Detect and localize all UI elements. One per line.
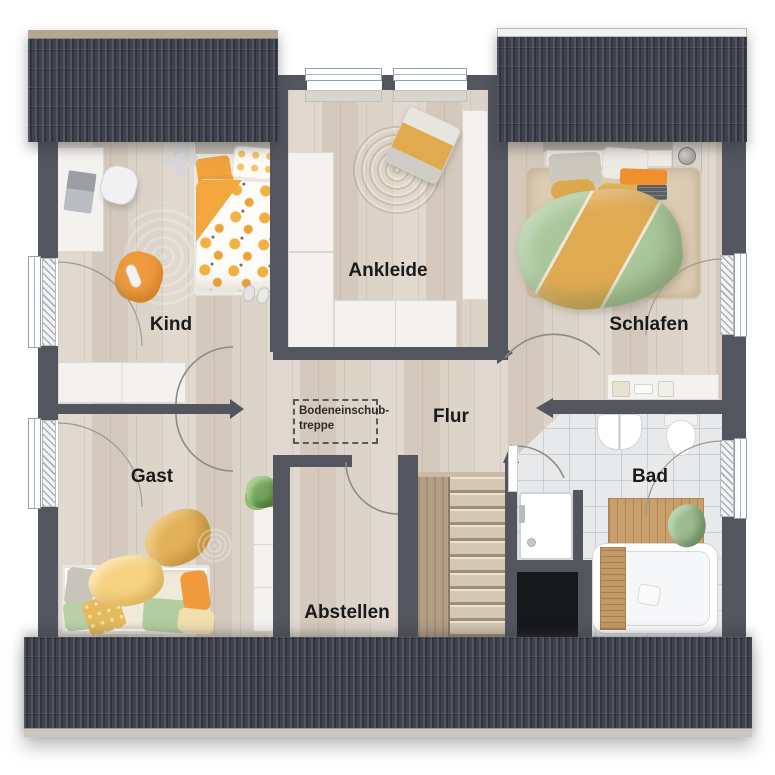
roof-top-right-ridge: [497, 28, 747, 37]
room-label-flur: Flur: [411, 406, 491, 428]
door-arc-schlafen: [505, 334, 600, 358]
annotation-line2: treppe: [299, 419, 376, 434]
roof-bottom: [24, 637, 752, 737]
door-arc-bad: [518, 446, 564, 478]
window-arc-gast: [58, 423, 142, 507]
door-arc-kind: [176, 347, 233, 404]
room-label-ankleide: Ankleide: [328, 260, 448, 282]
door-arc-gast: [176, 414, 233, 471]
room-label-kind: Kind: [131, 314, 211, 336]
roof-bottom-gutter: [24, 728, 752, 737]
annotation-line1: Bodeneinschub-: [299, 404, 376, 419]
roof-top-left-ridge: [28, 30, 278, 39]
room-label-abstellen: Abstellen: [277, 602, 417, 624]
window-arc-kind: [58, 262, 142, 346]
room-label-bad: Bad: [610, 466, 690, 488]
floorplan-canvas: Kind Ankleide Schlafen Flur Gast Bad Abs…: [0, 0, 775, 775]
room-label-gast: Gast: [112, 466, 192, 488]
roof-top-left: [28, 30, 278, 142]
room-label-schlafen: Schlafen: [589, 314, 709, 336]
roof-top-right: [497, 28, 747, 142]
door-arc-abstellen: [346, 462, 398, 514]
attic-ladder-annotation: Bodeneinschub- treppe: [293, 399, 378, 444]
